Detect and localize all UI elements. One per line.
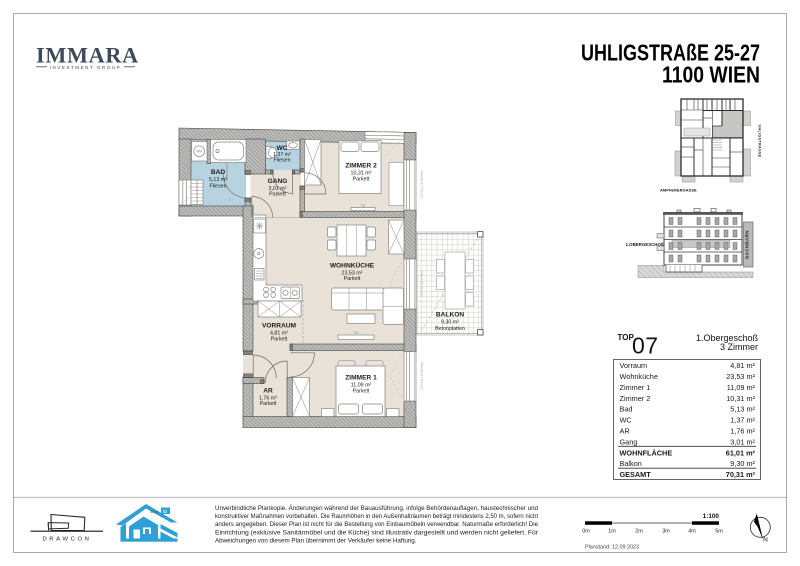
svg-text:WM: WM (196, 150, 202, 154)
svg-text:AMPFERERGASSE: AMPFERERGASSE (660, 188, 697, 193)
svg-text:07: 07 (632, 333, 659, 359)
svg-text:1,37 m²: 1,37 m² (730, 416, 755, 425)
svg-text:9,30 m²: 9,30 m² (730, 459, 755, 468)
svg-text:DRAWCON: DRAWCON (42, 536, 91, 542)
svg-text:Parkett: Parkett (271, 337, 288, 343)
svg-text:4,81 m²: 4,81 m² (730, 361, 755, 370)
svg-text:Parkett: Parkett (353, 176, 370, 182)
svg-text:3,01 m²: 3,01 m² (730, 437, 755, 446)
svg-text:WOHNKÜCHE: WOHNKÜCHE (330, 261, 375, 270)
svg-text:BAD: BAD (211, 169, 226, 176)
svg-text:WOHNFLÄCHE: WOHNFLÄCHE (620, 448, 673, 457)
svg-text:3m: 3m (662, 529, 670, 535)
svg-text:5,13 m²: 5,13 m² (209, 177, 227, 183)
svg-text:70,31 m²: 70,31 m² (726, 470, 756, 479)
svg-text:N: N (763, 537, 768, 544)
svg-text:11,09 m²: 11,09 m² (727, 383, 756, 392)
svg-text:23,53 m²: 23,53 m² (726, 372, 755, 381)
svg-text:anders angegeben. Dieser Plan: anders angegeben. Dieser Plan ist nicht … (215, 521, 539, 528)
svg-text:WC: WC (277, 145, 288, 152)
svg-text:ID: ID (163, 509, 168, 514)
svg-text:Parkett: Parkett (353, 388, 370, 394)
svg-text:3 Zimmer: 3 Zimmer (720, 342, 758, 352)
svg-text:GESAMT: GESAMT (620, 470, 652, 479)
svg-text:AR: AR (263, 388, 273, 395)
svg-text:PARAPET 89/201: PARAPET 89/201 (420, 362, 424, 390)
svg-text:Abweichungen von diesem Plan ü: Abweichungen von diesem Plan übernimmt d… (215, 537, 417, 544)
svg-text:Wohnküche: Wohnküche (620, 372, 658, 381)
svg-text:IMMARA: IMMARA (36, 43, 139, 68)
svg-text:Bad: Bad (620, 405, 633, 414)
svg-text:10,31 m²: 10,31 m² (726, 394, 755, 403)
svg-text:Parkett: Parkett (344, 276, 361, 282)
svg-text:BALKON: BALKON (436, 312, 464, 319)
svg-text:WC: WC (620, 416, 632, 425)
svg-text:INVESTMENT GROUP: INVESTMENT GROUP (50, 65, 121, 70)
svg-text:TV: TV (361, 204, 366, 208)
svg-text:PARAPET 89/201: PARAPET 89/201 (420, 171, 424, 199)
svg-text:5m: 5m (715, 529, 723, 535)
svg-text:Parkett: Parkett (269, 191, 286, 197)
svg-text:Vorraum: Vorraum (620, 361, 648, 370)
svg-text:UHLIGSTRASSE: UHLIGSTRASSE (758, 125, 762, 158)
svg-text:4m: 4m (688, 529, 696, 535)
svg-text:Zimmer 1: Zimmer 1 (620, 383, 651, 392)
svg-text:Parkett: Parkett (260, 401, 277, 407)
svg-text:AR: AR (620, 427, 630, 436)
svg-text:5,13 m²: 5,13 m² (730, 405, 755, 414)
svg-text:1100 WIEN: 1100 WIEN (662, 62, 760, 88)
svg-text:1.OBERGESCHOß: 1.OBERGESCHOß (626, 242, 664, 247)
svg-text:NACHBARN: NACHBARN (745, 230, 750, 259)
svg-text:Zimmer 2: Zimmer 2 (620, 394, 651, 403)
svg-text:Fliesen: Fliesen (209, 184, 226, 190)
svg-text:Planstand: 12.09.2023: Planstand: 12.09.2023 (585, 545, 639, 551)
svg-text:Einrichtung (exklusive Sanitär: Einrichtung (exklusive Sanitärmöbel und … (215, 529, 538, 536)
svg-text:Gang: Gang (620, 437, 638, 446)
svg-text:ZIMMER 1: ZIMMER 1 (345, 375, 377, 382)
svg-text:Unverbindliche Plankopie. Ände: Unverbindliche Plankopie. Änderungen wäh… (215, 505, 539, 512)
svg-text:GANG: GANG (268, 178, 288, 185)
svg-text:Balkon: Balkon (620, 459, 642, 468)
svg-text:2m: 2m (635, 529, 643, 535)
svg-text:0m: 0m (582, 529, 590, 535)
svg-text:4,6: 4,6 (228, 198, 233, 202)
svg-text:TV: TV (354, 331, 359, 335)
svg-text:1,76 m²: 1,76 m² (730, 427, 755, 436)
svg-text:9,30 m²: 9,30 m² (441, 320, 459, 326)
svg-text:ZIMMER 2: ZIMMER 2 (345, 163, 377, 170)
svg-text:1m: 1m (608, 529, 616, 535)
svg-text:haus: haus (150, 509, 159, 514)
svg-text:Betonplatten: Betonplatten (435, 326, 465, 332)
svg-text:61,01 m²: 61,01 m² (726, 448, 756, 457)
svg-text:Fliesen: Fliesen (273, 158, 290, 164)
svg-text:1,745: 1,745 (245, 202, 254, 206)
svg-text:1:100: 1:100 (703, 513, 720, 520)
svg-text:VORRAUM: VORRAUM (262, 323, 297, 330)
svg-text:konstruktiver Maßnahmen vorbeh: konstruktiver Maßnahmen vorbehalten. Die… (215, 513, 538, 520)
svg-text:FB+2,81 FE/SD: FB+2,81 FE/SD (420, 271, 424, 297)
